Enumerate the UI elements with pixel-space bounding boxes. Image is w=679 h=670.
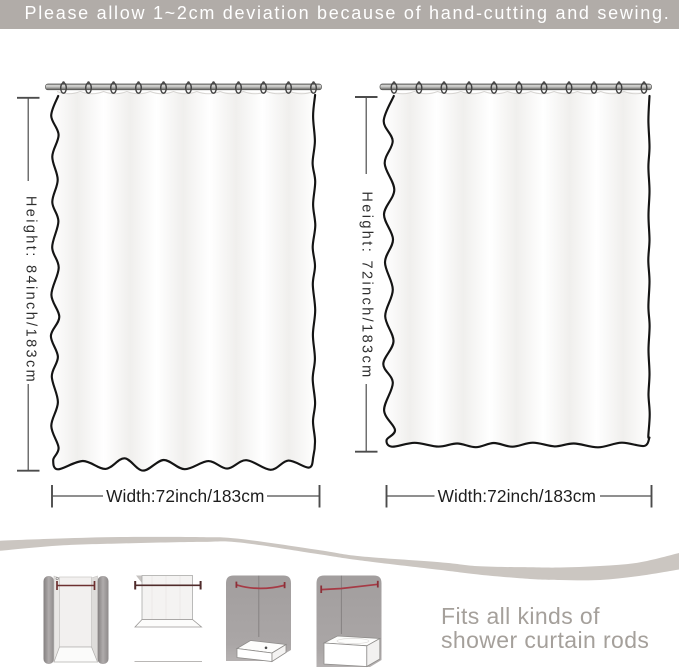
svg-text:Height: 72inch/183cm: Height: 72inch/183cm — [359, 191, 375, 379]
svg-text:Height: 84inch/183cm: Height: 84inch/183cm — [23, 196, 39, 384]
svg-text:Width:72inch/183cm: Width:72inch/183cm — [438, 486, 596, 506]
svg-text:Width:72inch/183cm: Width:72inch/183cm — [106, 486, 264, 506]
